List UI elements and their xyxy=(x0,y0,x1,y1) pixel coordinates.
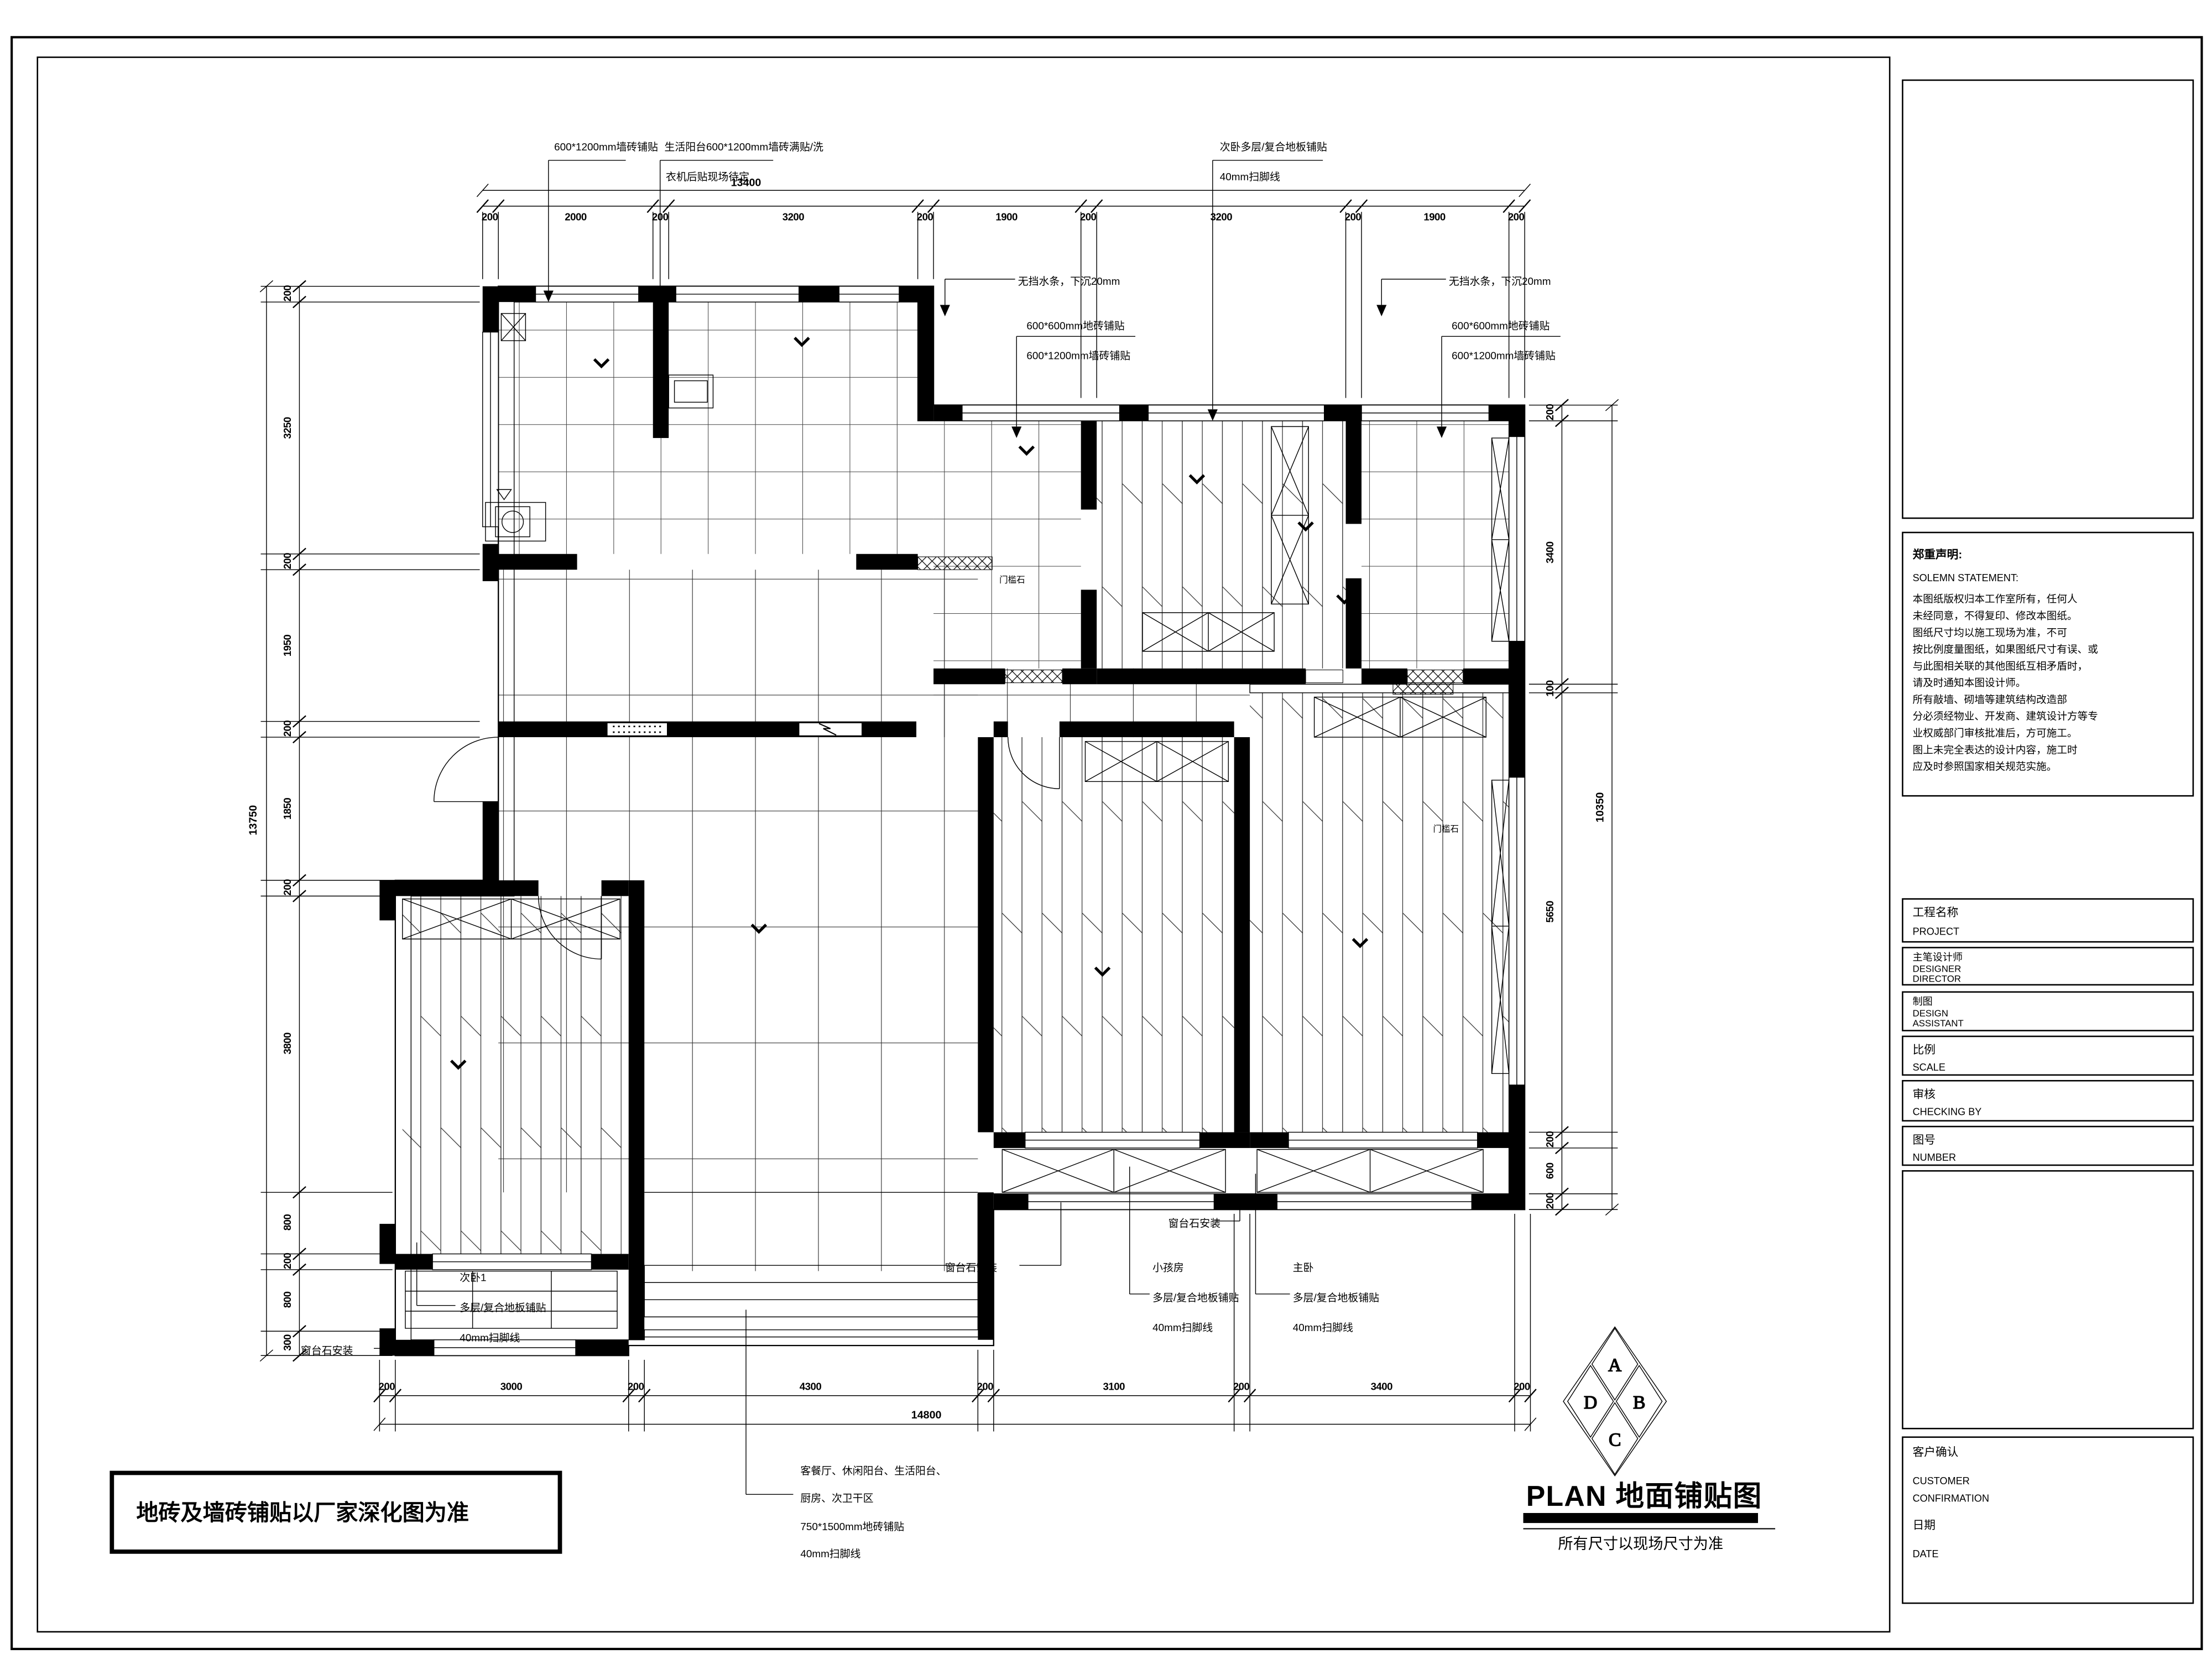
row-check-en: CHECKING BY xyxy=(1913,1106,1982,1117)
label-floor-tile-1: 600*600mm地砖铺贴 xyxy=(1026,320,1124,332)
wall-grille xyxy=(607,723,667,735)
svg-text:业权威部门审核批准后，方可施工。: 业权威部门审核批准后，方可施工。 xyxy=(1913,727,2078,739)
svg-text:3400: 3400 xyxy=(1544,541,1556,564)
label-kids-room: 小孩房 xyxy=(1152,1262,1184,1274)
svg-text:3800: 3800 xyxy=(281,1032,293,1055)
note-living-1: 客餐厅、休闲阳台、生活阳台、 xyxy=(800,1465,946,1477)
wall-vent xyxy=(799,723,862,735)
row-draft-zh: 制图 xyxy=(1913,996,1933,1007)
row-scale-en: SCALE xyxy=(1913,1062,1945,1073)
row-draft-en2: ASSISTANT xyxy=(1913,1018,1964,1029)
kitchen-laundry-floor xyxy=(498,302,933,554)
svg-text:1900: 1900 xyxy=(995,211,1018,223)
svg-text:300: 300 xyxy=(281,1334,293,1351)
bath2-floor xyxy=(1361,421,1509,669)
svg-text:200: 200 xyxy=(1544,1193,1556,1209)
svg-text:3000: 3000 xyxy=(500,1380,523,1392)
row-date-zh: 日期 xyxy=(1913,1519,1936,1531)
floor-plan: 门槛石 门槛石 xyxy=(379,286,1525,1356)
note-living-2: 厨房、次卫干区 xyxy=(800,1492,873,1504)
dim-right-total: 10350 xyxy=(1594,792,1606,822)
svg-text:800: 800 xyxy=(281,1291,293,1308)
label-bedroom-top-1: 次卧多层/复合地板铺贴 xyxy=(1220,141,1327,153)
svg-text:3250: 3250 xyxy=(281,417,293,439)
note-living-3: 750*1500mm地砖铺贴 xyxy=(800,1521,904,1533)
dim-bottom-total: 14800 xyxy=(911,1409,942,1421)
label-master-floor: 多层/复合地板铺贴 xyxy=(1293,1292,1379,1304)
row-check-zh: 审核 xyxy=(1913,1088,1936,1100)
row-project-zh: 工程名称 xyxy=(1913,906,1959,919)
svg-text:100: 100 xyxy=(1544,680,1556,697)
label-balcony-2: 衣机后贴现场待定 xyxy=(666,171,749,183)
label-kids-skirting: 40mm扫脚线 xyxy=(1152,1322,1213,1334)
label-sill-1: 窗台石安装 xyxy=(945,1262,997,1274)
svg-text:所有敲墙、砌墙等建筑结构改造部: 所有敲墙、砌墙等建筑结构改造部 xyxy=(1913,693,2067,705)
label-bedroom-top-2: 40mm扫脚线 xyxy=(1220,171,1280,183)
label-no-water-bar-2: 无挡水条，下沉20mm xyxy=(1449,275,1551,288)
svg-text:图纸尺寸均以施工现场为准，不可: 图纸尺寸均以施工现场为准，不可 xyxy=(1913,627,2067,638)
label-bedroom2-floor: 多层/复合地板铺贴 xyxy=(460,1302,546,1314)
room-fills xyxy=(403,302,1509,1271)
svg-text:应及时参照国家相关规范实施。: 应及时参照国家相关规范实施。 xyxy=(1913,761,2057,773)
svg-text:200: 200 xyxy=(482,211,498,223)
svg-text:200: 200 xyxy=(281,879,293,896)
svg-text:分必须经物业、开发商、建筑设计方等专: 分必须经物业、开发商、建筑设计方等专 xyxy=(1913,711,2098,722)
label-master-skirting: 40mm扫脚线 xyxy=(1293,1322,1353,1334)
drawing-sheet: 门槛石 门槛石 xyxy=(0,0,2212,1659)
svg-text:200: 200 xyxy=(1544,404,1556,421)
row-customer-en2: CONFIRMATION xyxy=(1913,1493,1990,1504)
label-floor-tile-2: 600*600mm地砖铺贴 xyxy=(1452,320,1550,332)
svg-text:图上未完全表达的设计内容，施工时: 图上未完全表达的设计内容，施工时 xyxy=(1913,744,2078,755)
svg-text:200: 200 xyxy=(628,1380,644,1392)
note-living-4: 40mm扫脚线 xyxy=(800,1548,860,1560)
compass-a: A xyxy=(1608,1355,1622,1376)
svg-text:200: 200 xyxy=(1233,1380,1250,1392)
svg-text:5650: 5650 xyxy=(1544,901,1556,923)
label-bedroom2: 次卧1 xyxy=(460,1272,486,1284)
dim-left-total: 13750 xyxy=(247,805,259,836)
svg-text:200: 200 xyxy=(917,211,933,223)
svg-text:1950: 1950 xyxy=(281,635,293,657)
factory-note: 地砖及墙砖铺贴以厂家深化图为准 xyxy=(112,1473,560,1552)
svg-text:请及时通知本图设计师。: 请及时通知本图设计师。 xyxy=(1913,677,2026,688)
svg-text:200: 200 xyxy=(379,1380,395,1392)
label-sill-2: 窗台石安装 xyxy=(1168,1217,1220,1229)
svg-text:4300: 4300 xyxy=(800,1380,822,1392)
balcony-floor xyxy=(644,1192,978,1271)
svg-text:200: 200 xyxy=(1080,211,1097,223)
label-wall-tile-2: 600*1200mm墙砖铺贴 xyxy=(1452,350,1556,362)
svg-text:200: 200 xyxy=(1544,1131,1556,1147)
threshold-label-2: 门槛石 xyxy=(1433,824,1459,834)
row-number-en: NUMBER xyxy=(1913,1152,1956,1163)
svg-text:200: 200 xyxy=(281,553,293,570)
row-designer-en2: DIRECTOR xyxy=(1913,974,1961,984)
row-designer-zh: 主笔设计师 xyxy=(1913,952,1963,963)
row-project-en: PROJECT xyxy=(1913,926,1960,937)
svg-text:200: 200 xyxy=(281,285,293,302)
svg-text:2000: 2000 xyxy=(565,211,587,223)
svg-text:3400: 3400 xyxy=(1371,1380,1393,1392)
svg-text:1900: 1900 xyxy=(1423,211,1446,223)
master-room-floor xyxy=(1250,693,1509,1133)
row-number-zh: 图号 xyxy=(1913,1134,1936,1146)
label-sill-3: 窗台石安装 xyxy=(301,1345,353,1357)
threshold-label-1: 门槛石 xyxy=(999,575,1025,585)
svg-text:本图纸版权归本工作室所有，任何人: 本图纸版权归本工作室所有，任何人 xyxy=(1913,593,2078,605)
row-date-en: DATE xyxy=(1913,1548,1939,1559)
factory-note-text: 地砖及墙砖铺贴以厂家深化图为准 xyxy=(136,1500,469,1525)
svg-text:200: 200 xyxy=(281,1253,293,1269)
compass-b: B xyxy=(1633,1392,1645,1413)
plan-title: PLAN 地面铺贴图 xyxy=(1526,1480,1762,1512)
svg-text:200: 200 xyxy=(977,1380,994,1392)
label-balcony-1: 生活阳台600*1200mm墙砖满贴/洗 xyxy=(664,141,823,153)
svg-text:3200: 3200 xyxy=(782,211,805,223)
svg-text:未经同意，不得复印、修改本图纸。: 未经同意，不得复印、修改本图纸。 xyxy=(1913,610,2078,622)
svg-text:200: 200 xyxy=(1508,211,1525,223)
compass-d: D xyxy=(1584,1392,1597,1413)
label-kids-floor: 多层/复合地板铺贴 xyxy=(1152,1292,1239,1304)
compass-c: C xyxy=(1609,1430,1621,1450)
row-draft-en1: DESIGN xyxy=(1913,1008,1948,1019)
svg-text:200: 200 xyxy=(1345,211,1361,223)
svg-text:200: 200 xyxy=(1514,1380,1530,1392)
row-scale-zh: 比例 xyxy=(1913,1044,1936,1056)
label-wall-tile-top: 600*1200mm墙砖铺贴 xyxy=(554,141,658,153)
bedroom2-floor xyxy=(403,896,622,1254)
svg-text:600: 600 xyxy=(1544,1162,1556,1179)
label-no-water-bar-1: 无挡水条，下沉20mm xyxy=(1018,275,1120,288)
plan-subtitle: 所有尺寸以现场尺寸为准 xyxy=(1558,1535,1723,1552)
kids-room-floor xyxy=(994,737,1234,1132)
row-customer-zh: 客户确认 xyxy=(1913,1446,1959,1458)
svg-text:3100: 3100 xyxy=(1103,1380,1125,1392)
svg-text:800: 800 xyxy=(281,1214,293,1231)
svg-text:3200: 3200 xyxy=(1211,211,1233,223)
statement-title-zh: 郑重声明: xyxy=(1913,547,1963,561)
label-wall-tile-1: 600*1200mm墙砖铺贴 xyxy=(1026,350,1130,362)
label-master-room: 主卧 xyxy=(1293,1262,1314,1274)
svg-text:与此图相关联的其他图纸互相矛盾时，: 与此图相关联的其他图纸互相矛盾时， xyxy=(1913,660,2088,672)
master-threshold xyxy=(1393,683,1453,695)
statement-title-en: SOLEMN STATEMENT: xyxy=(1913,572,2019,583)
row-customer-en1: CUSTOMER xyxy=(1913,1475,1970,1486)
svg-text:200: 200 xyxy=(281,721,293,737)
svg-text:按比例度量图纸，如果图纸尺寸有误、或: 按比例度量图纸，如果图纸尺寸有误、或 xyxy=(1913,644,2098,655)
svg-text:1850: 1850 xyxy=(281,798,293,820)
row-designer-en1: DESIGNER xyxy=(1913,964,1961,974)
label-bedroom2-skirting: 40mm扫脚线 xyxy=(460,1332,520,1344)
